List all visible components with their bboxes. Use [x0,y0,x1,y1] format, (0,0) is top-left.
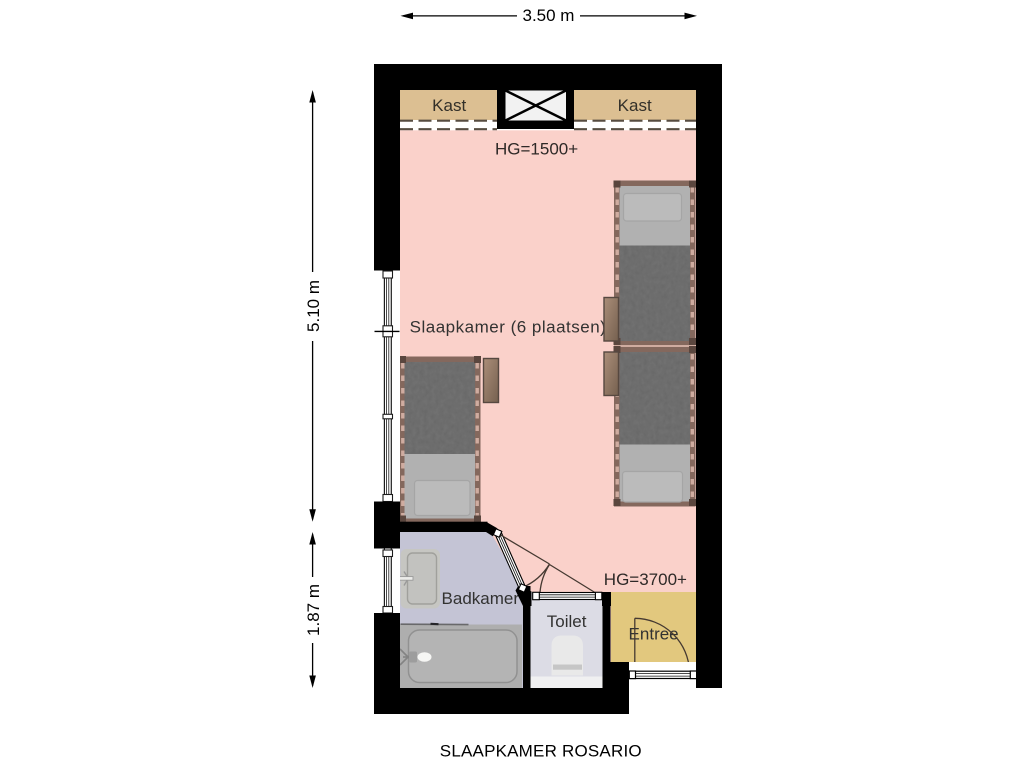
svg-text:Badkamer: Badkamer [442,589,520,608]
svg-text:Kast: Kast [618,96,652,115]
svg-text:Toilet: Toilet [547,612,587,631]
svg-text:Slaapkamer (6 plaatsen): Slaapkamer (6 plaatsen) [410,318,607,337]
svg-text:5.10 m: 5.10 m [304,280,323,332]
svg-text:3.50 m: 3.50 m [523,6,575,25]
svg-text:Entree: Entree [629,624,679,643]
svg-text:Kast: Kast [432,96,466,115]
svg-text:1.87 m: 1.87 m [304,584,323,636]
svg-text:HG=3700+: HG=3700+ [604,570,687,589]
svg-text:HG=1500+: HG=1500+ [495,139,578,158]
svg-text:SLAAPKAMER ROSARIO: SLAAPKAMER ROSARIO [440,742,642,761]
